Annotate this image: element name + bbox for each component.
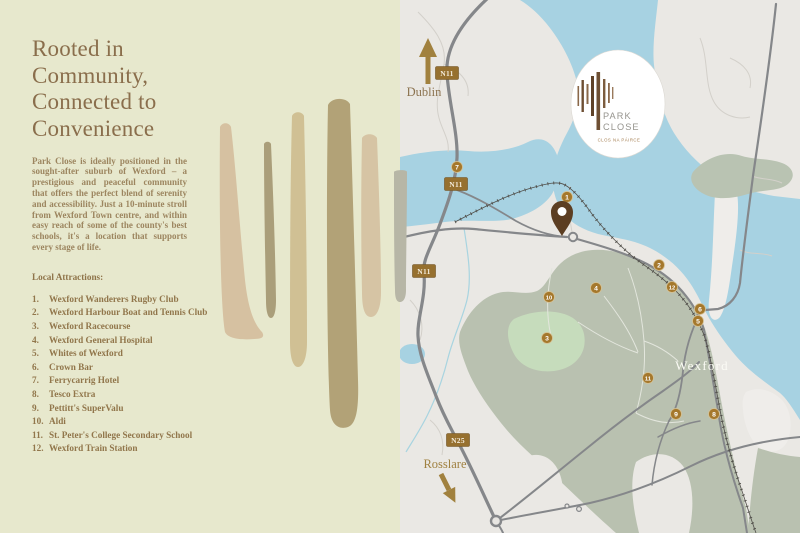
attraction-item: 1.Wexford Wanderers Rugby Club	[32, 293, 217, 307]
map: N11N11N11N25 123456789101112 Dublin Ross…	[400, 0, 800, 533]
reeds-decoration	[200, 80, 412, 450]
logo-subtitle: CLOS NA PÁIRCE	[598, 138, 641, 143]
svg-text:9: 9	[674, 411, 678, 418]
intro-paragraph: Park Close is ideally positioned in the …	[32, 156, 187, 253]
svg-text:N25: N25	[451, 436, 465, 445]
map-marker-3: 3	[542, 333, 553, 344]
map-marker-7: 7	[452, 162, 463, 173]
map-marker-11: 11	[643, 373, 654, 384]
attraction-item: 2.Wexford Harbour Boat and Tennis Club	[32, 306, 217, 320]
svg-text:N11: N11	[440, 69, 453, 78]
attraction-item: 4.Wexford General Hospital	[32, 334, 217, 348]
svg-text:5: 5	[696, 318, 700, 325]
attraction-item: 3.Wexford Racecourse	[32, 320, 217, 334]
map-marker-12: 12	[667, 282, 678, 293]
attraction-item: 6.Crown Bar	[32, 361, 217, 375]
map-marker-2: 2	[654, 260, 665, 271]
attraction-item: 7.Ferrycarrig Hotel	[32, 374, 217, 388]
rosslare-label: Rosslare	[423, 457, 467, 471]
attraction-item: 8.Tesco Extra	[32, 388, 217, 402]
attraction-item: 9.Pettitt's SuperValu	[32, 402, 217, 416]
map-marker-10: 10	[544, 292, 555, 303]
svg-text:10: 10	[546, 295, 552, 301]
svg-text:N11: N11	[417, 267, 430, 276]
attractions-list: 1.Wexford Wanderers Rugby Club2.Wexford …	[32, 293, 217, 456]
svg-text:4: 4	[594, 285, 598, 292]
reed-shape	[220, 123, 263, 339]
svg-text:6: 6	[698, 306, 702, 313]
logo-name-line1: PARK	[603, 111, 632, 121]
map-marker-8: 8	[709, 409, 720, 420]
svg-text:2: 2	[657, 262, 661, 269]
road-badge-N11: N11	[445, 178, 468, 191]
svg-text:N11: N11	[449, 180, 462, 189]
map-marker-5: 5	[693, 316, 704, 327]
map-marker-1: 1	[562, 192, 573, 203]
svg-text:11: 11	[645, 376, 652, 382]
svg-text:7: 7	[455, 164, 459, 171]
reed-shape	[264, 142, 276, 318]
attraction-item: 5.Whites of Wexford	[32, 347, 217, 361]
attraction-item: 10.Aldi	[32, 415, 217, 429]
logo-name-line2: CLOSE	[603, 122, 640, 132]
svg-text:1: 1	[565, 194, 569, 201]
reed-shape	[327, 99, 358, 428]
reed-shape	[361, 134, 381, 317]
road-badge-N11: N11	[436, 67, 459, 80]
map-marker-6: 6	[695, 304, 706, 315]
reed-shape	[394, 170, 407, 302]
map-marker-9: 9	[671, 409, 682, 420]
wexford-label: Wexford	[675, 358, 729, 373]
road-badge-N11: N11	[413, 265, 436, 278]
map-marker-4: 4	[591, 283, 602, 294]
svg-text:3: 3	[545, 335, 549, 342]
brand-logo: PARK CLOSE CLOS NA PÁIRCE	[571, 50, 665, 158]
page-title: Rooted in Community, Connected to Conven…	[32, 36, 194, 143]
reed-shape	[290, 112, 307, 367]
road-badge-N25: N25	[447, 434, 470, 447]
svg-text:12: 12	[669, 285, 675, 291]
attraction-item: 12.Wexford Train Station	[32, 442, 217, 456]
svg-text:8: 8	[712, 411, 716, 418]
brochure-page: Rooted in Community, Connected to Conven…	[0, 0, 800, 533]
attraction-item: 11.St. Peter's College Secondary School	[32, 429, 217, 443]
